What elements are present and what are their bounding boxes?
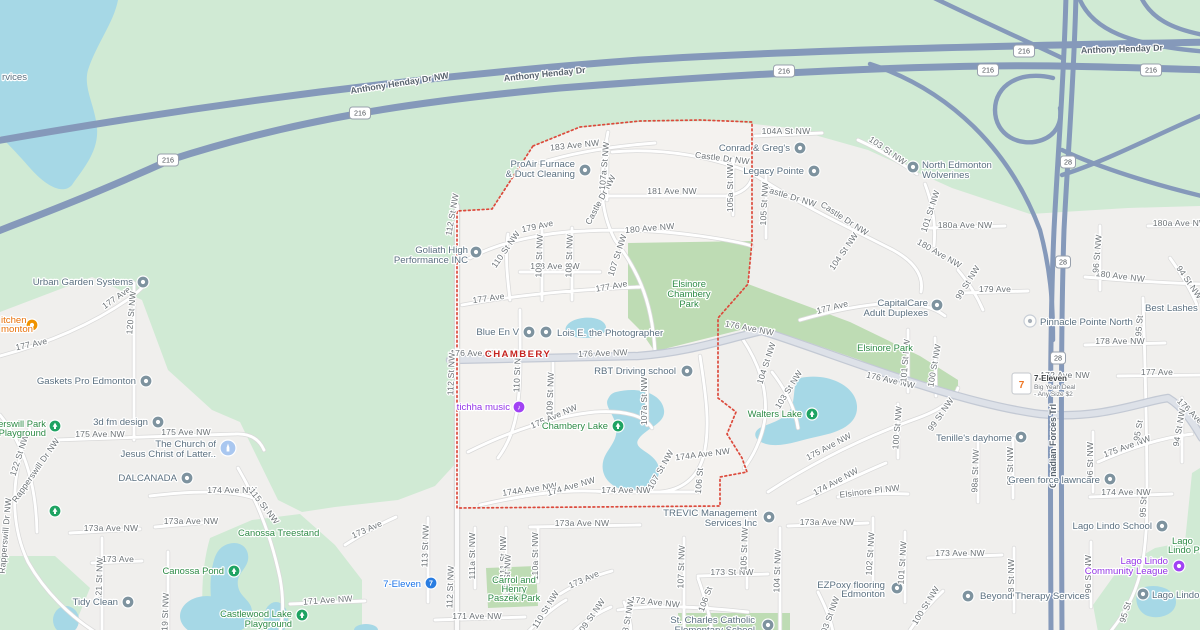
place-label[interactable]: Green force lawncare xyxy=(1008,475,1100,486)
street-label: 119 St NW xyxy=(159,592,171,630)
place-label[interactable]: 7-Eleven xyxy=(383,579,421,590)
svg-text:28: 28 xyxy=(1064,158,1072,167)
map-canvas[interactable]: 216216216216216216282828 ♪7 Anthony Hend… xyxy=(0,0,1200,630)
street-label: 175 Ave NW xyxy=(161,427,211,437)
poi-business-icon[interactable] xyxy=(579,164,591,176)
route-shield-216: 216 xyxy=(350,107,371,119)
place-label[interactable]: Services Inc xyxy=(705,518,757,529)
poi-business-icon[interactable] xyxy=(931,299,943,311)
poi-business-icon[interactable] xyxy=(122,596,134,608)
street-label: 121 St NW xyxy=(93,556,105,600)
svg-text:216: 216 xyxy=(778,67,790,76)
place-label[interactable]: Edmonton xyxy=(841,589,885,600)
street-label: 180a Ave NW xyxy=(938,220,993,230)
street-label: 181 Ave NW xyxy=(647,186,697,196)
poi-school-icon[interactable] xyxy=(762,619,774,630)
street-label: 173a Ave NW xyxy=(164,516,219,526)
park-label[interactable]: Lindo Par xyxy=(1168,544,1200,555)
route-shield-216: 216 xyxy=(978,64,999,76)
street-label: 107 St NW xyxy=(675,544,687,588)
place-label[interactable]: monton xyxy=(1,324,33,335)
neighborhood-label[interactable]: CHAMBERY xyxy=(485,349,551,360)
street-label: 173 Ave xyxy=(102,554,134,564)
poi-school-icon[interactable] xyxy=(1156,520,1168,532)
poi-business-icon[interactable] xyxy=(1104,473,1116,485)
place-label[interactable]: Best Lashes YEG xyxy=(1145,303,1200,314)
street-label: 112 St NW xyxy=(445,352,457,396)
ad-title: 7-Eleven xyxy=(1034,374,1067,383)
svg-text:216: 216 xyxy=(354,109,366,118)
svg-text:216: 216 xyxy=(1145,66,1157,75)
park-label[interactable]: Elsinore Park xyxy=(857,342,913,353)
poi-school-icon[interactable] xyxy=(1137,588,1149,600)
street-label: 110a St NW xyxy=(530,531,540,579)
place-label[interactable]: tichha music xyxy=(457,402,511,413)
street-label: 104A St NW xyxy=(762,126,811,136)
street-label: 180a Ave NW xyxy=(1153,218,1200,228)
place-label[interactable]: Gaskets Pro Edmonton xyxy=(37,376,136,387)
place-label[interactable]: Jesus Christ of Latter.. xyxy=(121,449,216,460)
place-label[interactable]: & Duct Cleaning xyxy=(506,169,575,180)
place-label[interactable]: Tidy Clean xyxy=(73,597,119,608)
park-label[interactable]: Park xyxy=(679,298,699,309)
place-label[interactable]: Urban Garden Systems xyxy=(33,277,133,288)
place-label[interactable]: Conrad & Greg's xyxy=(719,143,790,154)
place-label[interactable]: Community League xyxy=(1085,566,1168,577)
street-label: 171 Ave NW xyxy=(452,611,502,621)
poi-business-icon[interactable] xyxy=(181,472,193,484)
poi-park-icon[interactable] xyxy=(806,408,818,420)
poi-park-icon[interactable] xyxy=(228,565,240,577)
place-label[interactable]: Wolverines xyxy=(922,170,969,181)
poi-generic-white-icon[interactable] xyxy=(1024,315,1036,327)
street-label: 109 St NW xyxy=(544,371,556,415)
route-shield-28: 28 xyxy=(1051,352,1066,364)
poi-business-icon[interactable] xyxy=(681,365,693,377)
street-label: 98a St NW xyxy=(969,448,981,492)
street-label: 173a Ave NW xyxy=(555,518,610,528)
place-label[interactable]: Lago Lindo Pre xyxy=(1152,590,1200,601)
place-label[interactable]: Tenille's dayhome xyxy=(936,433,1012,444)
street-label: 109 St NW xyxy=(533,233,545,277)
poi-7-eleven-icon[interactable]: 7 xyxy=(425,577,437,589)
seven-eleven-logo-icon: 7 xyxy=(1019,380,1025,391)
svg-text:216: 216 xyxy=(1018,47,1030,56)
place-label[interactable]: Lago Lindo School xyxy=(1073,521,1152,532)
place-label[interactable]: Adult Duplexes xyxy=(863,308,928,319)
place-label[interactable]: RBT Driving school xyxy=(594,366,676,377)
street-label: 173 Ave NW xyxy=(935,548,985,558)
park-label[interactable]: Playground xyxy=(0,427,46,438)
route-shield-28: 28 xyxy=(1056,256,1071,268)
poi-business-icon[interactable] xyxy=(763,511,775,523)
street-label: 173a Ave NW xyxy=(800,517,855,527)
park-label[interactable]: Walters Lake xyxy=(748,408,802,419)
place-label[interactable]: rvices xyxy=(2,72,27,83)
place-label[interactable]: Elementary School xyxy=(674,625,755,630)
park-label[interactable]: Canossa Pond xyxy=(162,565,224,576)
svg-text:28: 28 xyxy=(1059,258,1067,267)
poi-business-icon[interactable] xyxy=(962,590,974,602)
street-label: 95 St xyxy=(1133,314,1145,336)
street-label: 95 St xyxy=(1137,496,1148,518)
street-label: 179 Ave xyxy=(979,284,1011,294)
place-label[interactable]: Blue En V xyxy=(476,327,519,338)
place-label[interactable]: Performance INC xyxy=(394,255,468,266)
street-label: 108 St NW xyxy=(563,233,575,277)
street-label: 105 St NW xyxy=(738,526,750,570)
street-label: 107a St NW xyxy=(639,376,649,425)
street-label: 175 Ave NW xyxy=(75,429,125,439)
seven-eleven-ad[interactable]: 7 7-Eleven Big Yeah Deal - Any Size $2 xyxy=(1012,373,1076,398)
route-shield-28: 28 xyxy=(1061,156,1076,168)
route-shield-216: 216 xyxy=(774,65,795,77)
poi-park-icon[interactable] xyxy=(612,420,624,432)
poi-music-icon[interactable]: ♪ xyxy=(513,401,525,413)
place-label[interactable]: Legacy Pointe xyxy=(743,166,804,177)
street-label: 112 St NW xyxy=(444,565,456,609)
place-label[interactable]: DALCANADA xyxy=(118,473,177,484)
svg-text:♪: ♪ xyxy=(517,405,521,412)
poi-park-icon[interactable] xyxy=(296,609,308,621)
poi-park-icon[interactable] xyxy=(49,505,61,517)
park-label[interactable]: Chambery Lake xyxy=(542,420,608,431)
route-shield-216: 216 xyxy=(1141,64,1162,76)
street-label: 113 St NW xyxy=(419,524,431,568)
poi-business-icon[interactable] xyxy=(794,142,806,154)
svg-text:216: 216 xyxy=(982,66,994,75)
poi-business-icon[interactable] xyxy=(540,326,552,338)
poi-business-icon[interactable] xyxy=(907,161,919,173)
poi-church-icon[interactable] xyxy=(220,440,236,456)
poi-business-icon[interactable] xyxy=(140,375,152,387)
svg-text:216: 216 xyxy=(162,156,174,165)
poi-community-icon[interactable] xyxy=(1173,560,1185,572)
route-shield-216: 216 xyxy=(158,154,179,166)
street-label: 111a St NW xyxy=(467,532,477,580)
poi-business-icon[interactable] xyxy=(470,246,482,258)
street-label: 177 Ave xyxy=(1141,367,1173,377)
place-label[interactable]: Beyond Therapy Services xyxy=(980,591,1090,602)
svg-text:7: 7 xyxy=(429,581,433,588)
street-label: 104 St NW xyxy=(771,548,783,592)
poi-business-icon[interactable] xyxy=(137,276,149,288)
ad-line1: Big Yeah Deal xyxy=(1034,384,1076,391)
place-label[interactable]: 3d fm design xyxy=(93,417,148,428)
street-label: 105a St NW xyxy=(725,163,735,212)
street-label: 176 Ave NW xyxy=(578,347,629,359)
poi-business-icon[interactable] xyxy=(1015,431,1027,443)
park-label[interactable]: Playground xyxy=(245,618,292,629)
park-label[interactable]: Paszek Park xyxy=(488,592,541,603)
place-label[interactable]: Pinnacle Pointe North xyxy=(1040,317,1133,328)
route-shield-216: 216 xyxy=(1014,45,1035,57)
svg-text:28: 28 xyxy=(1054,354,1062,363)
poi-park-icon[interactable] xyxy=(49,420,61,432)
ad-line2: - Any Size $2 xyxy=(1034,391,1073,398)
poi-business-icon[interactable] xyxy=(523,326,535,338)
street-label: 174 Ave NW xyxy=(1101,487,1151,497)
park-label[interactable]: Canossa Treestand xyxy=(238,527,319,538)
street-label: 178 Ave NW xyxy=(1095,336,1145,346)
poi-business-icon[interactable] xyxy=(808,165,820,177)
street-label: 173a Ave NW xyxy=(84,523,139,533)
place-label[interactable]: Lois E. the Photographer xyxy=(557,328,664,339)
street-label: 174 Ave NW xyxy=(601,485,651,495)
